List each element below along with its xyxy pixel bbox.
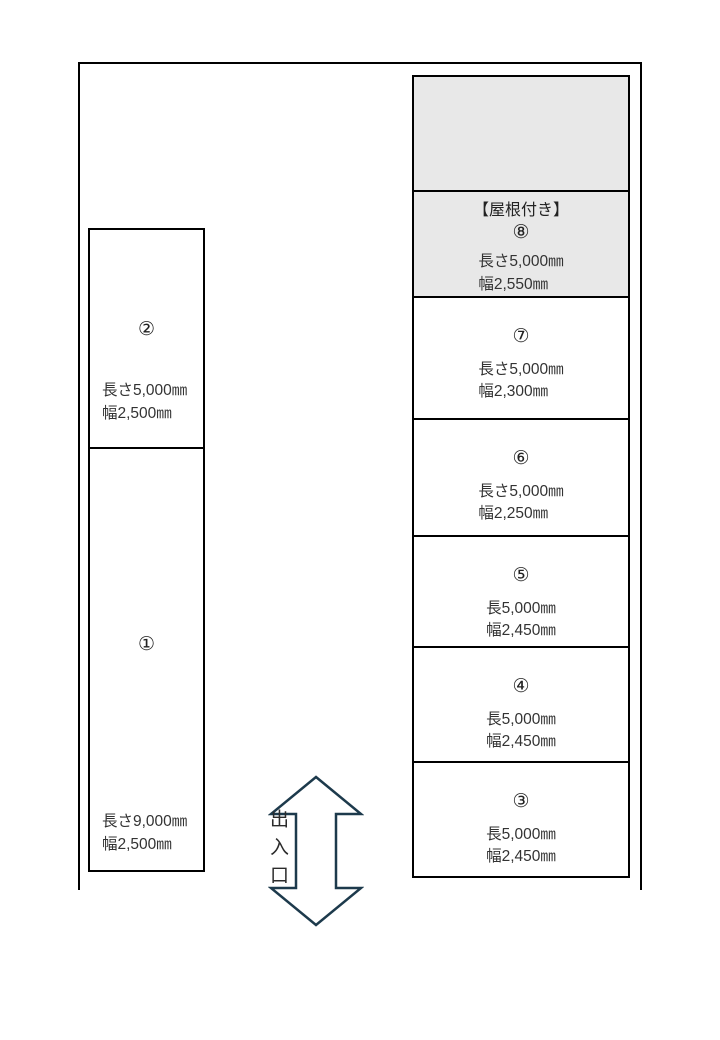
- parking-space-6: ⑥ 長さ5,000㎜ 幅2,250㎜: [412, 418, 630, 537]
- roofed-area-empty-cell: [412, 75, 630, 192]
- space-width: 幅2,450㎜: [486, 731, 556, 753]
- parking-space-3: ③ 長5,000㎜ 幅2,450㎜: [412, 761, 630, 878]
- space-length: 長さ9,000㎜: [102, 811, 187, 833]
- space-width: 幅2,550㎜: [478, 274, 563, 296]
- right-parking-column: 【屋根付き】 ⑧ 長さ5,000㎜ 幅2,550㎜ ⑦ 長さ5,000㎜ 幅2,…: [412, 75, 630, 878]
- space-width: 幅2,250㎜: [478, 503, 563, 525]
- space-number: ⑧: [512, 223, 529, 242]
- entrance-exit-label: 出入口: [268, 809, 364, 893]
- space-length: 長5,000㎜: [486, 709, 556, 731]
- space-number: ⑦: [512, 327, 529, 346]
- space-dimensions: 長さ9,000㎜ 幅2,500㎜: [102, 811, 187, 856]
- space-width: 幅2,450㎜: [486, 846, 556, 868]
- space-number: ⑤: [512, 566, 529, 585]
- parking-space-2: ② 長さ5,000㎜ 幅2,500㎜: [88, 228, 205, 449]
- space-length: 長5,000㎜: [486, 824, 556, 846]
- parking-space-1: ① 長さ9,000㎜ 幅2,500㎜: [88, 447, 205, 872]
- space-width: 幅2,500㎜: [102, 403, 187, 425]
- space-length: 長さ5,000㎜: [478, 481, 563, 503]
- space-length: 長さ5,000㎜: [478, 251, 563, 273]
- space-dimensions: 長5,000㎜ 幅2,450㎜: [486, 598, 556, 643]
- space-width: 幅2,500㎜: [102, 834, 187, 856]
- roof-label: 【屋根付き】: [473, 201, 569, 220]
- space-dimensions: 長さ5,000㎜ 幅2,250㎜: [478, 481, 563, 526]
- space-dimensions: 長さ5,000㎜ 幅2,500㎜: [102, 380, 187, 425]
- parking-space-7: ⑦ 長さ5,000㎜ 幅2,300㎜: [412, 296, 630, 420]
- space-dimensions: 長さ5,000㎜ 幅2,300㎜: [478, 359, 563, 404]
- parking-space-4: ④ 長5,000㎜ 幅2,450㎜: [412, 646, 630, 763]
- space-number: ⑥: [512, 449, 529, 468]
- space-length: 長さ5,000㎜: [102, 380, 187, 402]
- space-dimensions: 長5,000㎜ 幅2,450㎜: [486, 824, 556, 869]
- space-number: ②: [90, 320, 203, 339]
- space-dimensions: 長5,000㎜ 幅2,450㎜: [486, 709, 556, 754]
- space-width: 幅2,450㎜: [486, 620, 556, 642]
- space-length: 長さ5,000㎜: [478, 359, 563, 381]
- parking-layout-diagram: ② 長さ5,000㎜ 幅2,500㎜ ① 長さ9,000㎜ 幅2,500㎜ 【屋…: [0, 0, 720, 1040]
- space-number: ①: [90, 635, 203, 654]
- space-number: ③: [512, 792, 529, 811]
- space-dimensions: 長さ5,000㎜ 幅2,550㎜: [478, 251, 563, 296]
- space-width: 幅2,300㎜: [478, 381, 563, 403]
- parking-space-8-roofed: 【屋根付き】 ⑧ 長さ5,000㎜ 幅2,550㎜: [412, 190, 630, 298]
- parking-space-5: ⑤ 長5,000㎜ 幅2,450㎜: [412, 535, 630, 648]
- space-length: 長5,000㎜: [486, 598, 556, 620]
- entrance-exit-marker: 出入口: [268, 775, 364, 927]
- space-number: ④: [512, 677, 529, 696]
- left-parking-column: ② 長さ5,000㎜ 幅2,500㎜ ① 長さ9,000㎜ 幅2,500㎜: [88, 228, 205, 872]
